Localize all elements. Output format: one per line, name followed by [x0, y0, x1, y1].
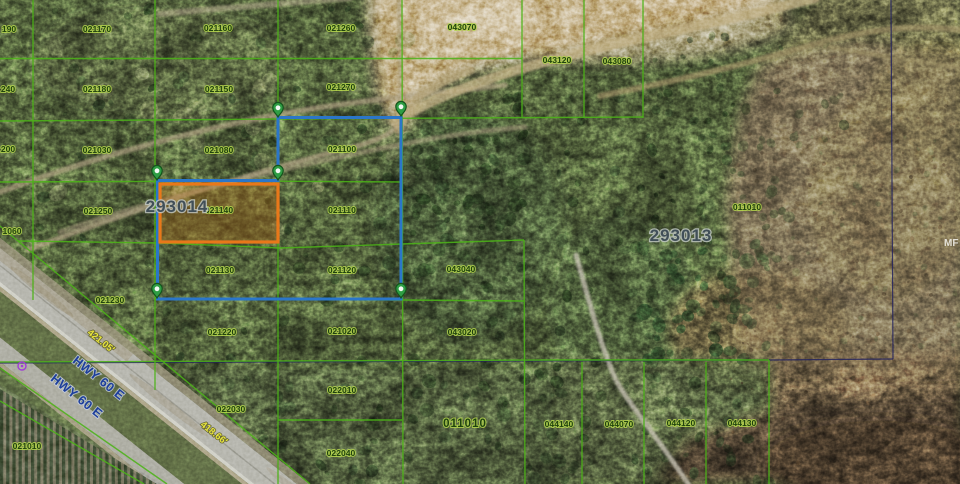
svg-text:293013: 293013	[650, 226, 713, 245]
svg-text:021180: 021180	[83, 84, 111, 94]
svg-text:MF: MF	[944, 238, 958, 249]
svg-text:021110: 021110	[328, 205, 356, 215]
svg-text:022010: 022010	[328, 385, 357, 395]
svg-text:011010: 011010	[733, 202, 761, 212]
svg-text:021130: 021130	[206, 265, 234, 275]
svg-text:021250: 021250	[84, 206, 113, 216]
svg-text:021120: 021120	[328, 265, 356, 275]
svg-text:011010: 011010	[443, 418, 487, 430]
svg-text:1060: 1060	[2, 226, 21, 236]
svg-text:021220: 021220	[208, 327, 237, 337]
svg-text:043120: 043120	[543, 55, 572, 65]
svg-text:021140: 021140	[205, 205, 233, 215]
svg-text:021020: 021020	[328, 326, 357, 336]
svg-text:021160: 021160	[204, 23, 232, 33]
svg-text:021270: 021270	[327, 82, 356, 92]
svg-text:021150: 021150	[205, 84, 233, 94]
svg-text:240: 240	[1, 84, 16, 94]
svg-text:044070: 044070	[605, 419, 634, 429]
svg-text:044130: 044130	[728, 418, 757, 428]
svg-text:021010: 021010	[13, 441, 42, 451]
svg-text:044140: 044140	[545, 419, 574, 429]
svg-text:022030: 022030	[217, 404, 246, 414]
svg-text:021100: 021100	[328, 144, 356, 154]
svg-text:021080: 021080	[205, 145, 234, 155]
svg-text:190: 190	[2, 24, 17, 34]
svg-text:293014: 293014	[146, 197, 209, 216]
svg-text:200: 200	[1, 144, 16, 154]
svg-text:043040: 043040	[447, 264, 476, 274]
svg-text:021230: 021230	[96, 295, 125, 305]
svg-text:021030: 021030	[83, 145, 112, 155]
svg-text:021260: 021260	[327, 23, 356, 33]
svg-text:022040: 022040	[327, 448, 356, 458]
svg-text:043070: 043070	[448, 22, 477, 32]
svg-text:044120: 044120	[667, 418, 696, 428]
svg-text:043020: 043020	[448, 327, 477, 337]
svg-text:021170: 021170	[83, 24, 111, 34]
svg-text:043080: 043080	[603, 56, 632, 66]
